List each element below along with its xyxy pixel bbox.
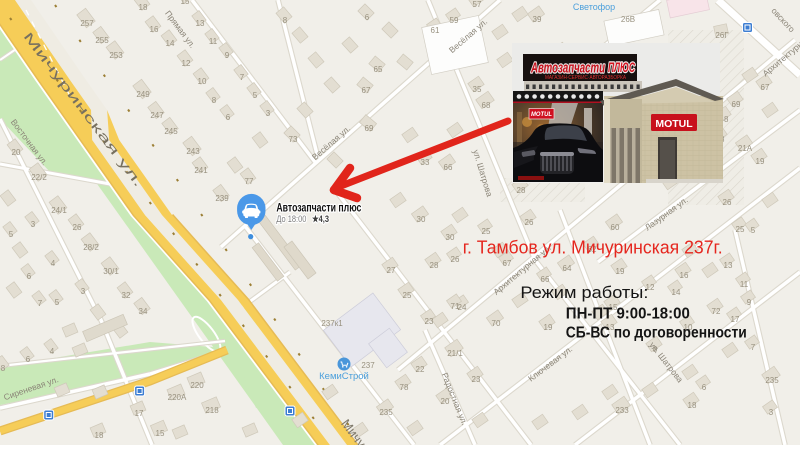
svg-text:5: 5 xyxy=(9,230,14,239)
svg-text:8: 8 xyxy=(283,16,288,25)
svg-text:30: 30 xyxy=(446,233,455,242)
svg-text:18: 18 xyxy=(688,401,697,410)
svg-text:19: 19 xyxy=(756,157,765,166)
svg-text:MOTUL: MOTUL xyxy=(655,118,693,130)
svg-text:65: 65 xyxy=(374,65,383,74)
svg-text:28: 28 xyxy=(430,261,439,270)
svg-text:69: 69 xyxy=(365,124,374,133)
svg-text:13: 13 xyxy=(724,261,733,270)
svg-text:12: 12 xyxy=(182,59,191,68)
svg-text:23: 23 xyxy=(472,375,481,384)
svg-text:239: 239 xyxy=(215,194,229,203)
svg-text:9: 9 xyxy=(225,51,230,60)
svg-text:237к1: 237к1 xyxy=(321,319,343,328)
svg-text:7: 7 xyxy=(240,73,245,82)
svg-text:13: 13 xyxy=(196,19,205,28)
svg-text:60: 60 xyxy=(611,223,620,232)
svg-text:30/1: 30/1 xyxy=(103,267,119,276)
svg-text:220А: 220А xyxy=(168,393,187,402)
svg-text:До 18:00: До 18:00 xyxy=(276,214,306,224)
svg-text:ПЛЮС: ПЛЮС xyxy=(608,59,636,75)
svg-text:235: 235 xyxy=(379,408,393,417)
svg-text:34: 34 xyxy=(139,307,148,316)
svg-text:249: 249 xyxy=(136,90,150,99)
svg-text:6: 6 xyxy=(26,355,31,364)
svg-text:26: 26 xyxy=(525,218,534,227)
svg-text:14: 14 xyxy=(672,288,681,297)
svg-text:39: 39 xyxy=(533,15,542,24)
svg-text:5: 5 xyxy=(253,91,258,100)
svg-text:6: 6 xyxy=(226,113,231,122)
svg-text:30: 30 xyxy=(417,215,426,224)
svg-text:22/2: 22/2 xyxy=(31,173,47,182)
svg-text:68: 68 xyxy=(482,101,491,110)
svg-text:8: 8 xyxy=(1,364,6,373)
svg-text:4: 4 xyxy=(50,347,55,356)
svg-text:15: 15 xyxy=(156,429,165,438)
svg-text:11: 11 xyxy=(740,280,749,289)
svg-text:28: 28 xyxy=(517,186,526,195)
svg-text:8: 8 xyxy=(212,96,217,105)
svg-text:10: 10 xyxy=(198,77,207,86)
svg-text:25: 25 xyxy=(736,225,745,234)
svg-text:220: 220 xyxy=(190,381,204,390)
svg-text:★4,3: ★4,3 xyxy=(311,214,329,224)
svg-text:5: 5 xyxy=(751,226,756,235)
svg-text:19: 19 xyxy=(544,323,553,332)
svg-text:9: 9 xyxy=(747,298,752,307)
svg-text:23: 23 xyxy=(425,317,434,326)
svg-text:257: 257 xyxy=(80,19,94,28)
svg-text:Светофор: Светофор xyxy=(573,2,615,12)
svg-text:73: 73 xyxy=(289,135,298,144)
svg-text:21А: 21А xyxy=(738,144,753,153)
svg-text:3: 3 xyxy=(31,220,36,229)
svg-text:32: 32 xyxy=(122,291,131,300)
svg-text:27: 27 xyxy=(387,266,396,275)
svg-text:245: 245 xyxy=(164,127,178,136)
svg-text:MOTUL: MOTUL xyxy=(531,111,552,118)
svg-text:247: 247 xyxy=(150,111,164,120)
svg-text:Автозапчасти: Автозапчасти xyxy=(530,60,605,77)
svg-text:20: 20 xyxy=(441,397,450,406)
svg-text:6: 6 xyxy=(27,272,32,281)
svg-text:3: 3 xyxy=(81,287,86,296)
svg-text:21/1: 21/1 xyxy=(447,349,463,358)
svg-text:28/2: 28/2 xyxy=(83,243,99,252)
svg-text:26: 26 xyxy=(73,223,82,232)
svg-text:19: 19 xyxy=(616,267,625,276)
svg-text:26: 26 xyxy=(451,255,460,264)
svg-text:67: 67 xyxy=(761,83,770,92)
svg-text:3: 3 xyxy=(769,408,774,417)
svg-text:59: 59 xyxy=(450,16,459,25)
svg-text:6: 6 xyxy=(365,13,370,22)
svg-text:18: 18 xyxy=(139,3,148,12)
svg-text:6: 6 xyxy=(702,383,707,392)
svg-text:Автозапчасти плюс: Автозапчасти плюс xyxy=(276,203,361,215)
svg-text:7: 7 xyxy=(751,343,756,352)
svg-text:20: 20 xyxy=(12,148,21,157)
svg-text:57: 57 xyxy=(473,0,482,9)
svg-text:24/1: 24/1 xyxy=(51,206,67,215)
svg-text:КемиСтрой: КемиСтрой xyxy=(319,371,369,382)
svg-text:МАГАЗИН·СЕРВИС·АВТОРАЗБОРКА: МАГАЗИН·СЕРВИС·АВТОРАЗБОРКА xyxy=(545,75,626,81)
svg-text:7: 7 xyxy=(38,299,43,308)
svg-text:25: 25 xyxy=(482,227,491,236)
svg-text:35: 35 xyxy=(473,85,482,94)
svg-text:66: 66 xyxy=(444,163,453,172)
svg-text:17: 17 xyxy=(135,409,144,418)
svg-text:241: 241 xyxy=(194,166,208,175)
svg-text:18: 18 xyxy=(95,431,104,440)
svg-text:72: 72 xyxy=(712,307,721,316)
svg-text:16: 16 xyxy=(150,25,159,34)
svg-text:78: 78 xyxy=(400,383,409,392)
svg-text:71: 71 xyxy=(451,302,460,311)
svg-text:235: 235 xyxy=(765,376,779,385)
svg-text:26: 26 xyxy=(723,198,732,207)
svg-text:64: 64 xyxy=(563,264,572,273)
svg-text:26Г: 26Г xyxy=(715,31,729,40)
svg-text:253: 253 xyxy=(109,51,123,60)
svg-text:11: 11 xyxy=(209,37,218,46)
svg-text:17: 17 xyxy=(731,315,740,324)
svg-text:70: 70 xyxy=(492,319,501,328)
svg-text:67: 67 xyxy=(362,86,371,95)
svg-text:22: 22 xyxy=(416,365,425,374)
svg-text:4: 4 xyxy=(51,259,56,268)
svg-text:5: 5 xyxy=(55,298,60,307)
svg-text:14: 14 xyxy=(166,39,175,48)
svg-text:233: 233 xyxy=(615,406,629,415)
svg-text:67: 67 xyxy=(503,259,512,268)
svg-text:218: 218 xyxy=(205,406,219,415)
svg-text:255: 255 xyxy=(95,36,109,45)
svg-text:ПН-ПТ 9:00-18:00: ПН-ПТ 9:00-18:00 xyxy=(566,306,690,323)
svg-text:243: 243 xyxy=(186,147,200,156)
svg-text:237: 237 xyxy=(361,361,375,370)
svg-text:Режим работы:: Режим работы: xyxy=(520,283,648,302)
svg-text:77: 77 xyxy=(245,177,254,186)
svg-text:25: 25 xyxy=(403,291,412,300)
svg-text:16: 16 xyxy=(680,271,689,280)
svg-text:СБ-ВС по договоренности: СБ-ВС по договоренности xyxy=(566,325,747,342)
svg-text:3: 3 xyxy=(266,109,271,118)
svg-text:г. Тамбов ул. Мичуринская 237г: г. Тамбов ул. Мичуринская 237г. xyxy=(463,238,723,258)
svg-text:69: 69 xyxy=(732,100,741,109)
svg-text:33: 33 xyxy=(421,158,430,167)
svg-text:26В: 26В xyxy=(621,15,635,24)
svg-text:15: 15 xyxy=(181,0,190,6)
svg-text:61: 61 xyxy=(431,26,440,35)
